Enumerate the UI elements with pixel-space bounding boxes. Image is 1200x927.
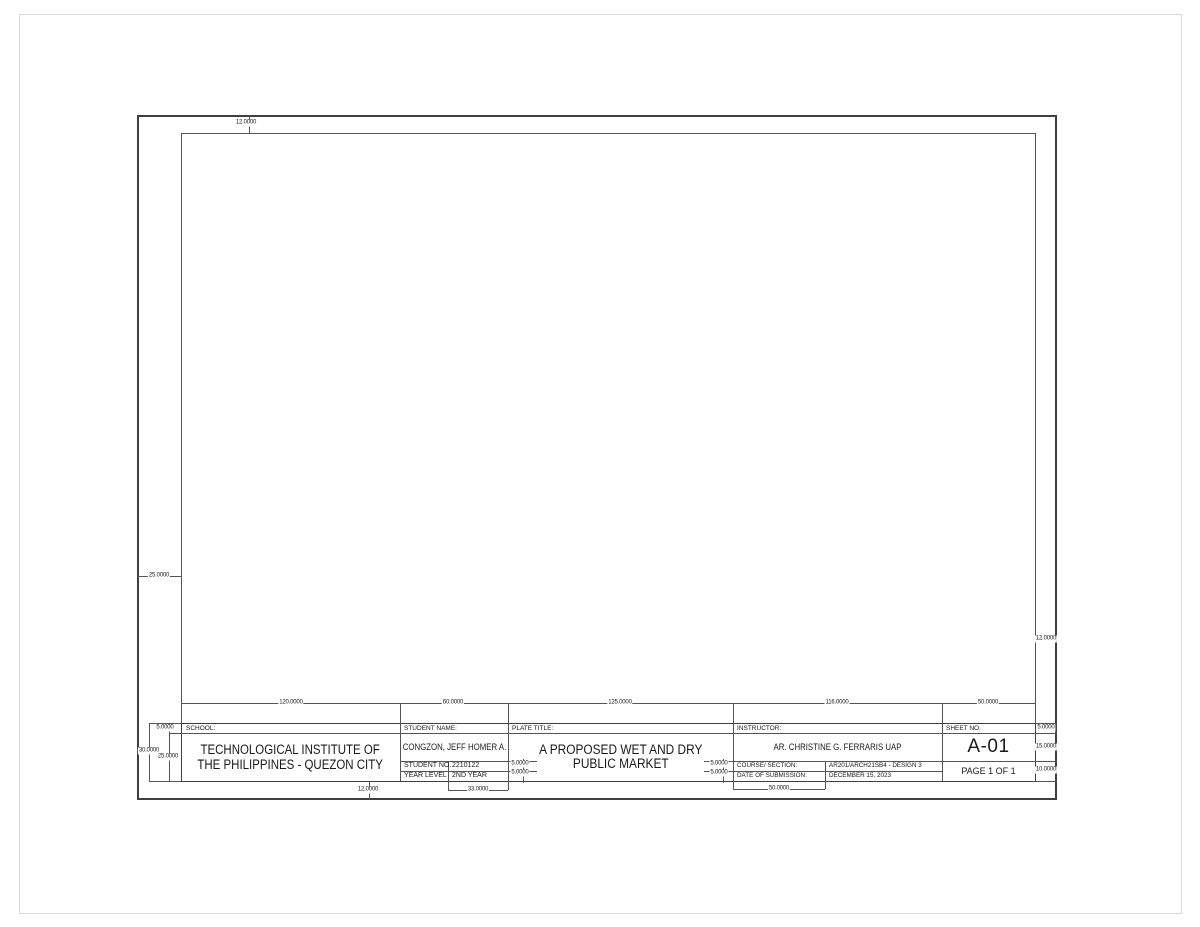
plate-title-cell: A PROPOSED WET AND DRY PUBLIC MARKET <box>509 733 732 781</box>
plate-title-line1: A PROPOSED WET AND DRY <box>539 743 702 757</box>
drawing-sheet-page: { "title_block": { "school": { "label": … <box>0 0 1200 927</box>
dimension-label-sheet-width: 50.0000 <box>977 700 999 707</box>
page-number: PAGE 1 OF 1 <box>961 766 1015 776</box>
dimension-label-instructor-width: 116.0000 <box>825 700 850 707</box>
plate-title-header-label: PLATE TITLE: <box>512 724 553 733</box>
date-of-submission-value: DECEMBER 15, 2023 <box>829 771 891 781</box>
dimension-label-body-height: 25.0000 <box>157 754 179 761</box>
year-level-value: 2ND YEAR <box>452 771 487 781</box>
dimension-label-plate-width: 125.0000 <box>607 700 632 707</box>
course-section-value: AR201/ARCH21SB4 - DESIGN 3 <box>829 761 922 771</box>
dimension-label-school-width: 120.0000 <box>278 700 303 707</box>
school-name-line1: TECHNOLOGICAL INSTITUTE OF <box>198 742 384 757</box>
dimension-tick <box>733 703 734 723</box>
instructor-name: AR. CHRISTINE G. FERRARIS UAP <box>774 742 902 752</box>
dimension-extension-line <box>1035 781 1057 782</box>
drawing-area <box>181 133 1036 704</box>
date-of-submission-label: DATE OF SUBMISSION: <box>737 771 807 781</box>
sheet-number-cell: A-01 <box>943 733 1034 761</box>
student-no-label: STUDENT NO. <box>404 761 451 771</box>
year-level-label: YEAR LEVEL <box>404 771 447 781</box>
dimension-extension-line <box>149 781 181 782</box>
dimension-label-left-margin: 25.0000 <box>148 573 170 580</box>
dimension-extension-line <box>169 733 181 734</box>
school-header-label: SCHOOL: <box>186 724 215 733</box>
dimension-extension-line <box>448 781 449 790</box>
instructor-name-cell: AR. CHRISTINE G. FERRARIS UAP <box>734 733 941 761</box>
dimension-tick <box>508 703 509 723</box>
page-number-cell: PAGE 1 OF 1 <box>943 761 1034 781</box>
student-name-header-label: STUDENT NAME: <box>404 724 457 733</box>
dimension-extension-line <box>733 781 734 789</box>
plate-title-line2: PUBLIC MARKET <box>539 757 702 771</box>
dimension-label-instructor-label-width: 50.0000 <box>768 786 790 793</box>
dimension-extension-line <box>825 781 826 789</box>
dimension-label-right-margin: 12.0000 <box>1035 636 1057 643</box>
sheet-number: A-01 <box>967 736 1009 758</box>
dimension-label-student-value-width: 33.0000 <box>467 787 489 794</box>
student-name: CONGZON, JEFF HOMER A. <box>402 742 506 752</box>
dimension-extension-line <box>169 723 170 781</box>
dimension-extension-line <box>508 781 509 790</box>
dimension-label-sheet-no-row: 15.0000 <box>1035 744 1057 751</box>
school-name: TECHNOLOGICAL INSTITUTE OF THE PHILIPPIN… <box>198 742 384 772</box>
dimension-tick <box>942 703 943 723</box>
plate-title: A PROPOSED WET AND DRY PUBLIC MARKET <box>539 743 702 771</box>
dimension-tick <box>400 703 401 723</box>
dimension-label-top-margin: 12.0000 <box>235 120 257 127</box>
dimension-extension-line <box>1035 733 1057 734</box>
dimension-tick <box>181 703 182 723</box>
dimension-label-header-row-height: 5.0000 <box>155 725 174 732</box>
student-no-value: 2210122 <box>452 761 479 771</box>
instructor-header-label: INSTRUCTOR: <box>737 724 781 733</box>
titleblock-sub-divider <box>825 761 826 781</box>
sheet-no-header-label: SHEET NO. <box>946 724 981 733</box>
course-section-label: COURSE/ SECTION: <box>737 761 797 771</box>
dimension-label-sheet-header-row: 5.0000 <box>1036 725 1055 732</box>
dimension-label-page-row: 10.0000 <box>1035 767 1057 774</box>
school-name-cell: TECHNOLOGICAL INSTITUTE OF THE PHILIPPIN… <box>182 734 399 780</box>
dimension-tick <box>1035 703 1036 723</box>
dimension-extension-line <box>1035 761 1057 762</box>
dimension-label-bottom-margin: 12.0000 <box>357 787 379 794</box>
school-name-line2: THE PHILIPPINES - QUEZON CITY <box>198 757 384 772</box>
dimension-label-student-width: 60.0000 <box>442 700 464 707</box>
student-name-cell: CONGZON, JEFF HOMER A. <box>401 733 507 761</box>
